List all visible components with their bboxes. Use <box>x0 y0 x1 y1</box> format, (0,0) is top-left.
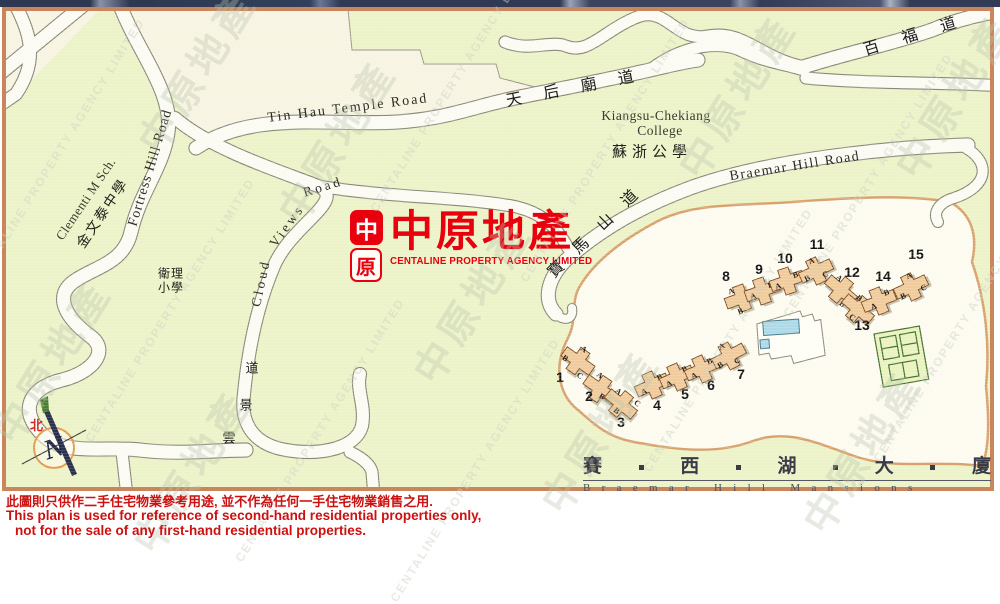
road-surface <box>806 78 990 86</box>
centaline-seal-top: 中 <box>350 210 383 245</box>
block-number-13: 13 <box>854 317 870 333</box>
disclaimer-line-english-2: not for the sale of any first-hand resid… <box>6 524 481 539</box>
compass-north-label: 北 <box>30 418 43 433</box>
block-number-15: 15 <box>908 246 924 262</box>
block-number-5: 5 <box>681 386 689 402</box>
block-number-4: 4 <box>653 397 661 413</box>
centaline-seal: 中 原 <box>350 210 383 282</box>
estate-title-english: Braemar Hill Mansions <box>583 482 991 494</box>
block-number-1: 1 <box>556 369 564 385</box>
tennis-courts <box>874 326 929 387</box>
title-separator-square <box>833 465 838 470</box>
block-number-9: 9 <box>755 261 763 277</box>
block-number-8: 8 <box>722 268 730 284</box>
scanned-map-page: ABC1AB2ABC3AB4AB5AB6ABC7ABC8AB9AB10ABC11… <box>0 0 1000 540</box>
estate-title-chinese: 賽西湖大廈 <box>583 451 991 478</box>
estate-title-char: 大 <box>875 451 894 478</box>
estate-title-char: 廈 <box>972 451 991 478</box>
block-number-3: 3 <box>617 414 625 430</box>
block-number-10: 10 <box>777 250 793 266</box>
disclaimer-line-english-1: This plan is used for reference of secon… <box>6 509 481 524</box>
disclaimer: 此圖則只供作二手住宅物業參考用途, 並不作為任何一手住宅物業銷售之用. This… <box>6 495 481 538</box>
scan-edge-artifact <box>0 0 1000 7</box>
block-number-2: 2 <box>585 388 593 404</box>
block-number-7: 7 <box>737 366 745 382</box>
centaline-seal-bottom: 原 <box>350 248 382 282</box>
centaline-name-chinese: 中原地產 <box>390 210 598 255</box>
centaline-logo: 中 原 中原地產 CENTALINE PROPERTY AGENCY LIMIT… <box>350 210 598 282</box>
estate-title-divider <box>583 480 991 481</box>
centaline-name-english: CENTALINE PROPERTY AGENCY LIMITED <box>390 256 592 267</box>
block-number-11: 11 <box>810 236 825 252</box>
block-number-12: 12 <box>844 264 860 280</box>
estate-title-char: 賽 <box>583 451 602 478</box>
road-surface <box>122 452 127 487</box>
title-separator-square <box>736 465 741 470</box>
block-number-14: 14 <box>875 268 891 284</box>
estate-title-char: 湖 <box>777 451 796 478</box>
title-separator-square <box>639 465 644 470</box>
title-separator-square <box>930 465 935 470</box>
disclaimer-line-chinese: 此圖則只供作二手住宅物業參考用途, 並不作為任何一手住宅物業銷售之用. <box>6 495 481 509</box>
block-number-6: 6 <box>707 377 715 393</box>
estate-title: 賽西湖大廈 Braemar Hill Mansions <box>583 451 991 494</box>
estate-title-char: 西 <box>680 451 699 478</box>
